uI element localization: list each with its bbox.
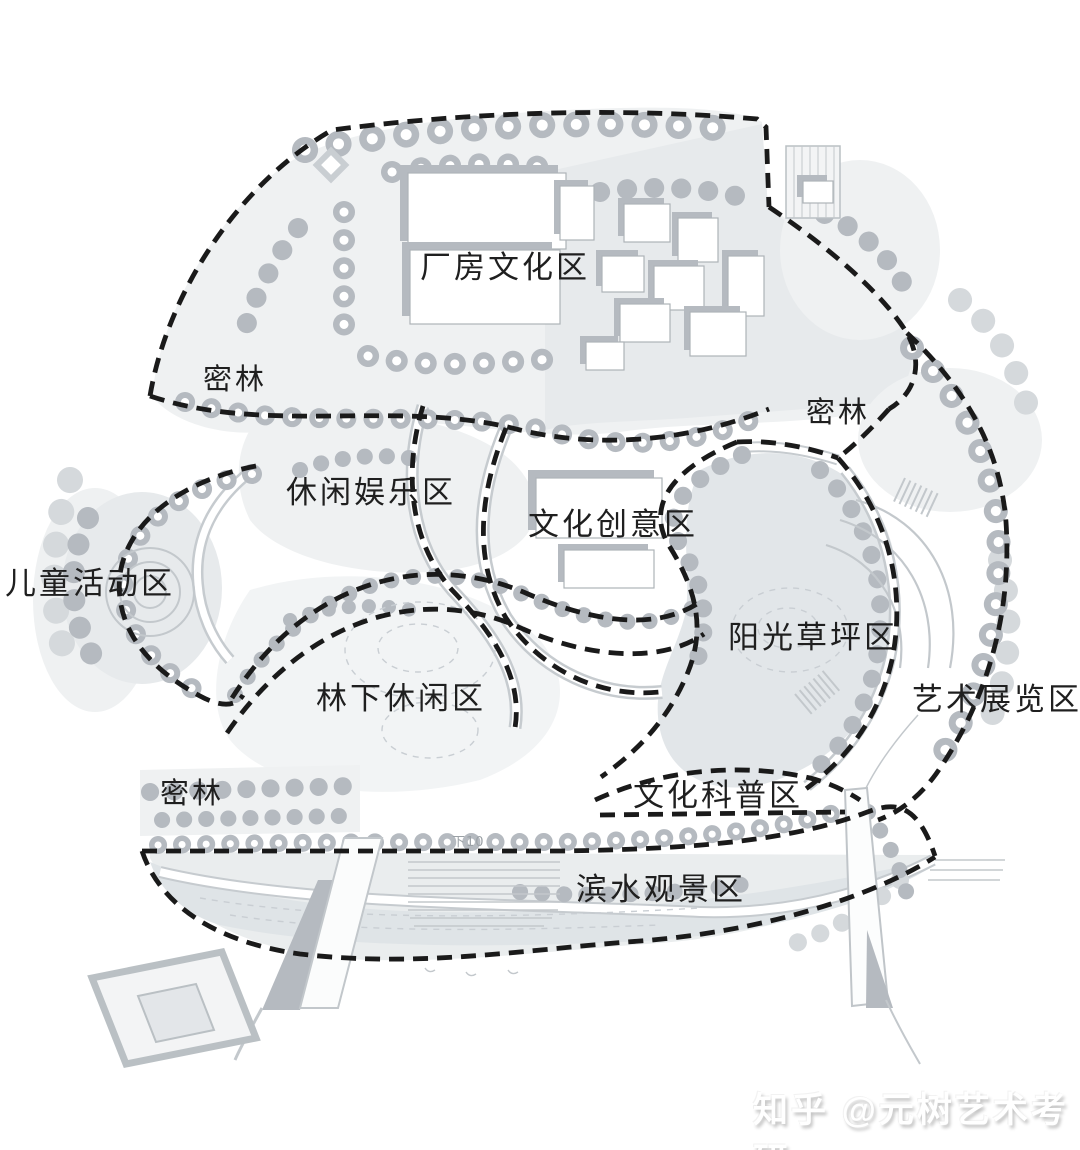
site-plan-page: 厂房文化区 密林 密林 休闲娱乐区 文化创意区 儿童活动区 阳光草坪区 林下休闲… bbox=[0, 0, 1080, 1150]
trellis-structure bbox=[786, 146, 840, 218]
zone-label-sunny-lawn: 阳光草坪区 bbox=[728, 622, 898, 653]
watermark: 知乎 @元树艺术考研 bbox=[753, 1082, 1080, 1150]
zone-label-children-activity: 儿童活动区 bbox=[5, 568, 175, 599]
zone-label-dense-forest-east: 密林 bbox=[806, 399, 870, 428]
zone-label-waterfront-scenic: 滨水观景区 bbox=[576, 874, 746, 905]
zone-label-leisure-entertainment: 休闲娱乐区 bbox=[286, 477, 456, 508]
zone-label-cultural-creative: 文化创意区 bbox=[528, 509, 698, 540]
pier-frame bbox=[92, 952, 256, 1064]
zone-label-dense-forest-west: 密林 bbox=[203, 366, 267, 395]
zone-label-factory-culture: 厂房文化区 bbox=[420, 252, 590, 283]
zone-label-art-exhibition: 艺术展览区 bbox=[912, 684, 1080, 715]
slope-annotation: 下10 bbox=[452, 831, 485, 850]
zone-label-dense-forest-south: 密林 bbox=[160, 780, 224, 809]
zone-label-forest-leisure: 林下休闲区 bbox=[316, 683, 486, 714]
zone-label-culture-science: 文化科普区 bbox=[633, 780, 803, 811]
